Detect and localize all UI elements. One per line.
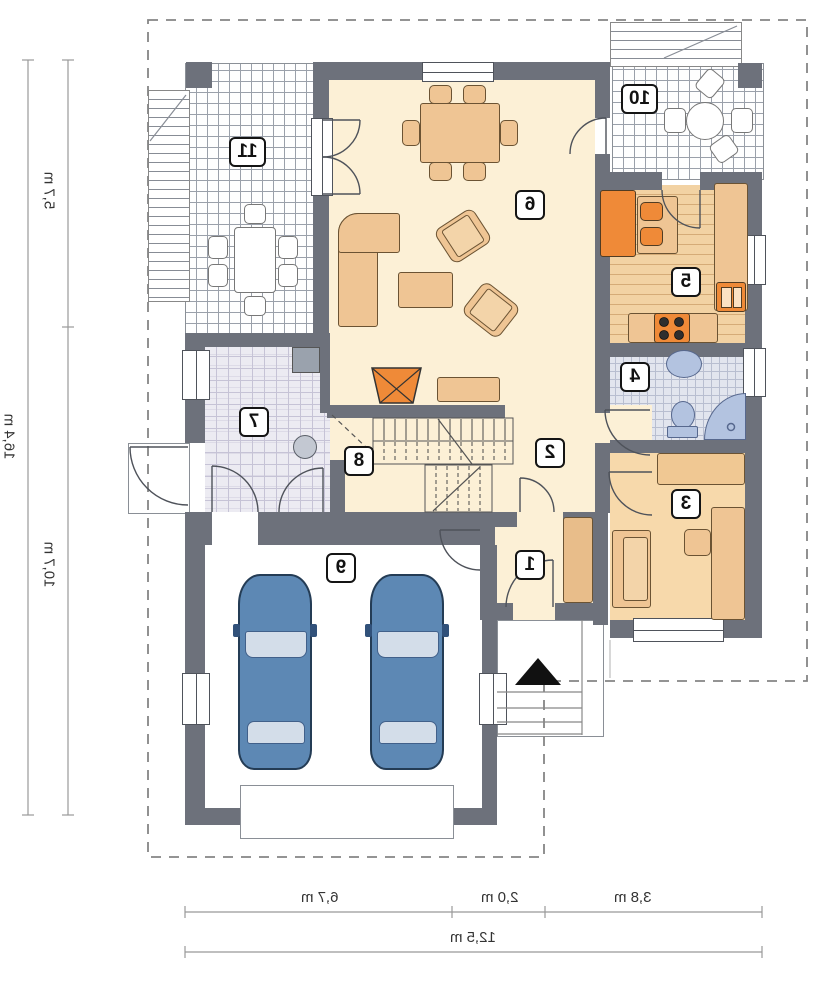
room-number: 10 [629, 88, 650, 110]
wall [185, 808, 240, 825]
pergola-left [148, 90, 190, 302]
dining-chair [463, 162, 486, 181]
boiler-box [292, 347, 320, 373]
room-number: 8 [354, 450, 365, 472]
wall [452, 808, 497, 825]
wall [258, 512, 480, 545]
dim-value: 3,8 m [614, 889, 652, 906]
car-rear-window [379, 721, 437, 744]
wall [327, 405, 505, 418]
room-number: 6 [525, 194, 536, 216]
room-number: 1 [525, 554, 536, 576]
dim-bottom-total: 12,5 m [433, 928, 513, 946]
dining-chair [500, 120, 518, 146]
closet [563, 517, 593, 603]
room-number: 3 [681, 493, 692, 515]
room-number: 4 [630, 366, 641, 388]
terrace-chair [208, 236, 228, 259]
room-number: 5 [681, 271, 692, 293]
water-heater [293, 435, 317, 459]
car-rear-window [247, 721, 305, 744]
window [479, 673, 507, 725]
dining-table [420, 103, 500, 163]
room-number: 7 [249, 411, 260, 433]
wardrobe [657, 453, 745, 485]
kitchen-chair [640, 227, 663, 246]
wall [185, 398, 205, 443]
room-label-10: 10 [621, 84, 658, 114]
wall [185, 530, 205, 675]
sofa-seat [623, 537, 648, 601]
dining-chair [402, 120, 420, 146]
terrace-table [234, 227, 276, 293]
dim-value: 10,7 m [41, 541, 58, 587]
car [238, 574, 312, 770]
dim-bottom-seg-3: 3,8 m [593, 888, 673, 906]
room-label-8: 8 [344, 446, 374, 476]
wall [313, 62, 329, 120]
room-number: 2 [545, 442, 556, 464]
wall [185, 333, 330, 347]
kitchen-sink [716, 282, 746, 312]
dim-bottom-seg-1: 6,7 m [280, 888, 360, 906]
terrace-chair [278, 264, 298, 287]
room-label-6: 6 [515, 190, 545, 220]
garage-door-panel [240, 785, 454, 839]
tv-bench [437, 377, 500, 402]
wall [482, 723, 497, 808]
wall [186, 62, 212, 88]
window [743, 348, 766, 397]
terrace-chair [244, 204, 266, 224]
room-label-4: 4 [620, 362, 650, 392]
side-porch [128, 443, 190, 514]
room-number: 11 [237, 141, 257, 163]
dining-chair [429, 85, 452, 104]
wall [313, 192, 329, 333]
window [422, 62, 494, 82]
dim-left-top: 5,7 m [38, 158, 60, 222]
wall [610, 440, 762, 453]
car-windshield [245, 631, 307, 658]
wall [600, 172, 662, 190]
terrace-chair [664, 108, 686, 133]
dim-value: 2,0 m [481, 889, 519, 906]
room-number: 9 [336, 557, 347, 579]
dim-value: 12,5 m [450, 929, 496, 946]
window [633, 618, 724, 642]
terrace-chair [208, 264, 228, 287]
wall [555, 603, 602, 620]
room-label-2: 2 [535, 438, 565, 468]
floor-plan: 1 2 3 4 5 6 7 8 9 10 11 5,7 m 10,7 m 16,… [0, 0, 833, 1000]
wall [313, 62, 422, 80]
wall [610, 620, 633, 638]
room-label-1: 1 [515, 550, 545, 580]
dim-bottom-seg-2: 2,0 m [460, 888, 540, 906]
car-mirror [233, 624, 240, 637]
desk [711, 507, 745, 620]
stove [654, 313, 690, 343]
wall [480, 512, 517, 527]
car [370, 574, 444, 770]
coffee-table [398, 272, 453, 308]
dim-left-total: 16,4 m [0, 398, 20, 474]
room-label-7: 7 [239, 407, 269, 437]
round-table [686, 102, 724, 140]
terrace-chair [731, 108, 753, 133]
wall [722, 620, 762, 638]
window [182, 673, 210, 725]
wall [330, 460, 345, 512]
pergola-top [610, 22, 742, 67]
room-label-11: 11 [229, 137, 266, 167]
bathroom-entry-notch [605, 405, 652, 443]
sink-basin [721, 287, 732, 308]
car-windshield [377, 631, 439, 658]
sofa [612, 530, 651, 608]
terrace-chair [278, 236, 298, 259]
desk-chair [684, 529, 711, 556]
room-label-5: 5 [671, 267, 701, 297]
wall [492, 62, 610, 80]
room-label-9: 9 [326, 553, 356, 583]
dim-value: 6,7 m [301, 889, 339, 906]
terrace-chair [244, 296, 266, 316]
dim-value: 5,7 m [41, 171, 58, 209]
wall [482, 545, 497, 675]
washbasin [666, 350, 702, 378]
wall [738, 63, 762, 88]
wall [745, 395, 762, 638]
wall [595, 443, 610, 513]
kitchen-cabinet [600, 190, 636, 257]
corner-sofa [338, 213, 400, 253]
kitchen-chair [640, 202, 663, 221]
car-mirror [310, 624, 317, 637]
dim-value: 16,4 m [1, 413, 18, 459]
wall [320, 347, 330, 413]
toilet-bowl [671, 401, 695, 429]
french-door-sill [311, 118, 333, 196]
entrance-steps [497, 620, 604, 737]
terrace-11-floor [185, 63, 315, 335]
dining-chair [463, 85, 486, 104]
toilet-tank [667, 426, 698, 438]
sink-basin [733, 287, 742, 308]
dim-left-bottom: 10,7 m [38, 526, 60, 602]
wall [595, 62, 610, 118]
car-mirror [365, 624, 372, 637]
window [182, 350, 210, 400]
car-mirror [442, 624, 449, 637]
room-label-3: 3 [671, 489, 701, 519]
dining-chair [429, 162, 452, 181]
